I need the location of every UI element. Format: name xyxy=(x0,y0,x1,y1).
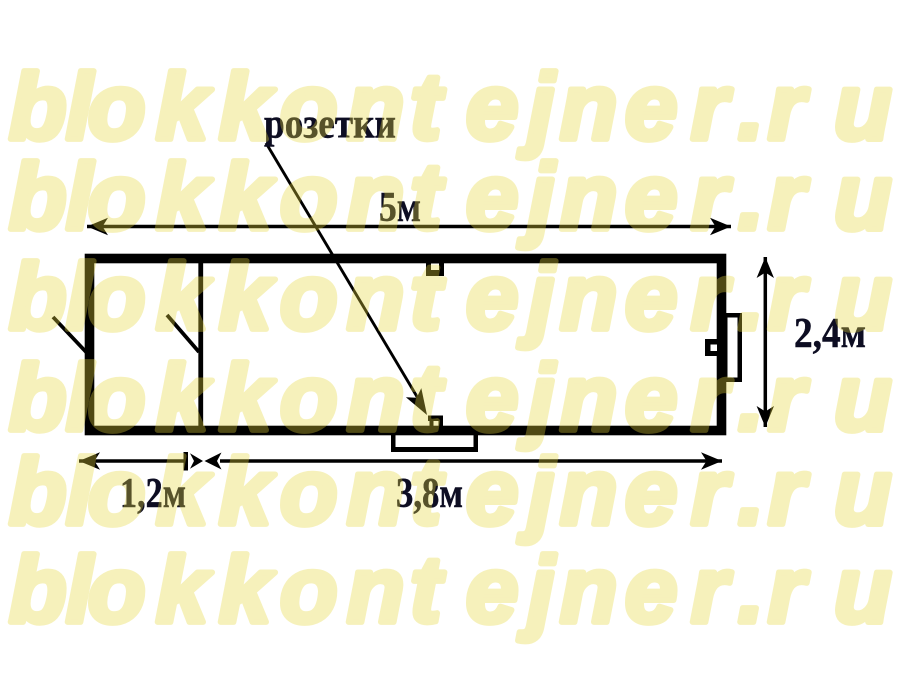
svg-text:blokkontejner.ru: blokkontejner.ru xyxy=(9,537,891,642)
svg-text:blokkontejner.ru: blokkontejner.ru xyxy=(9,144,891,249)
